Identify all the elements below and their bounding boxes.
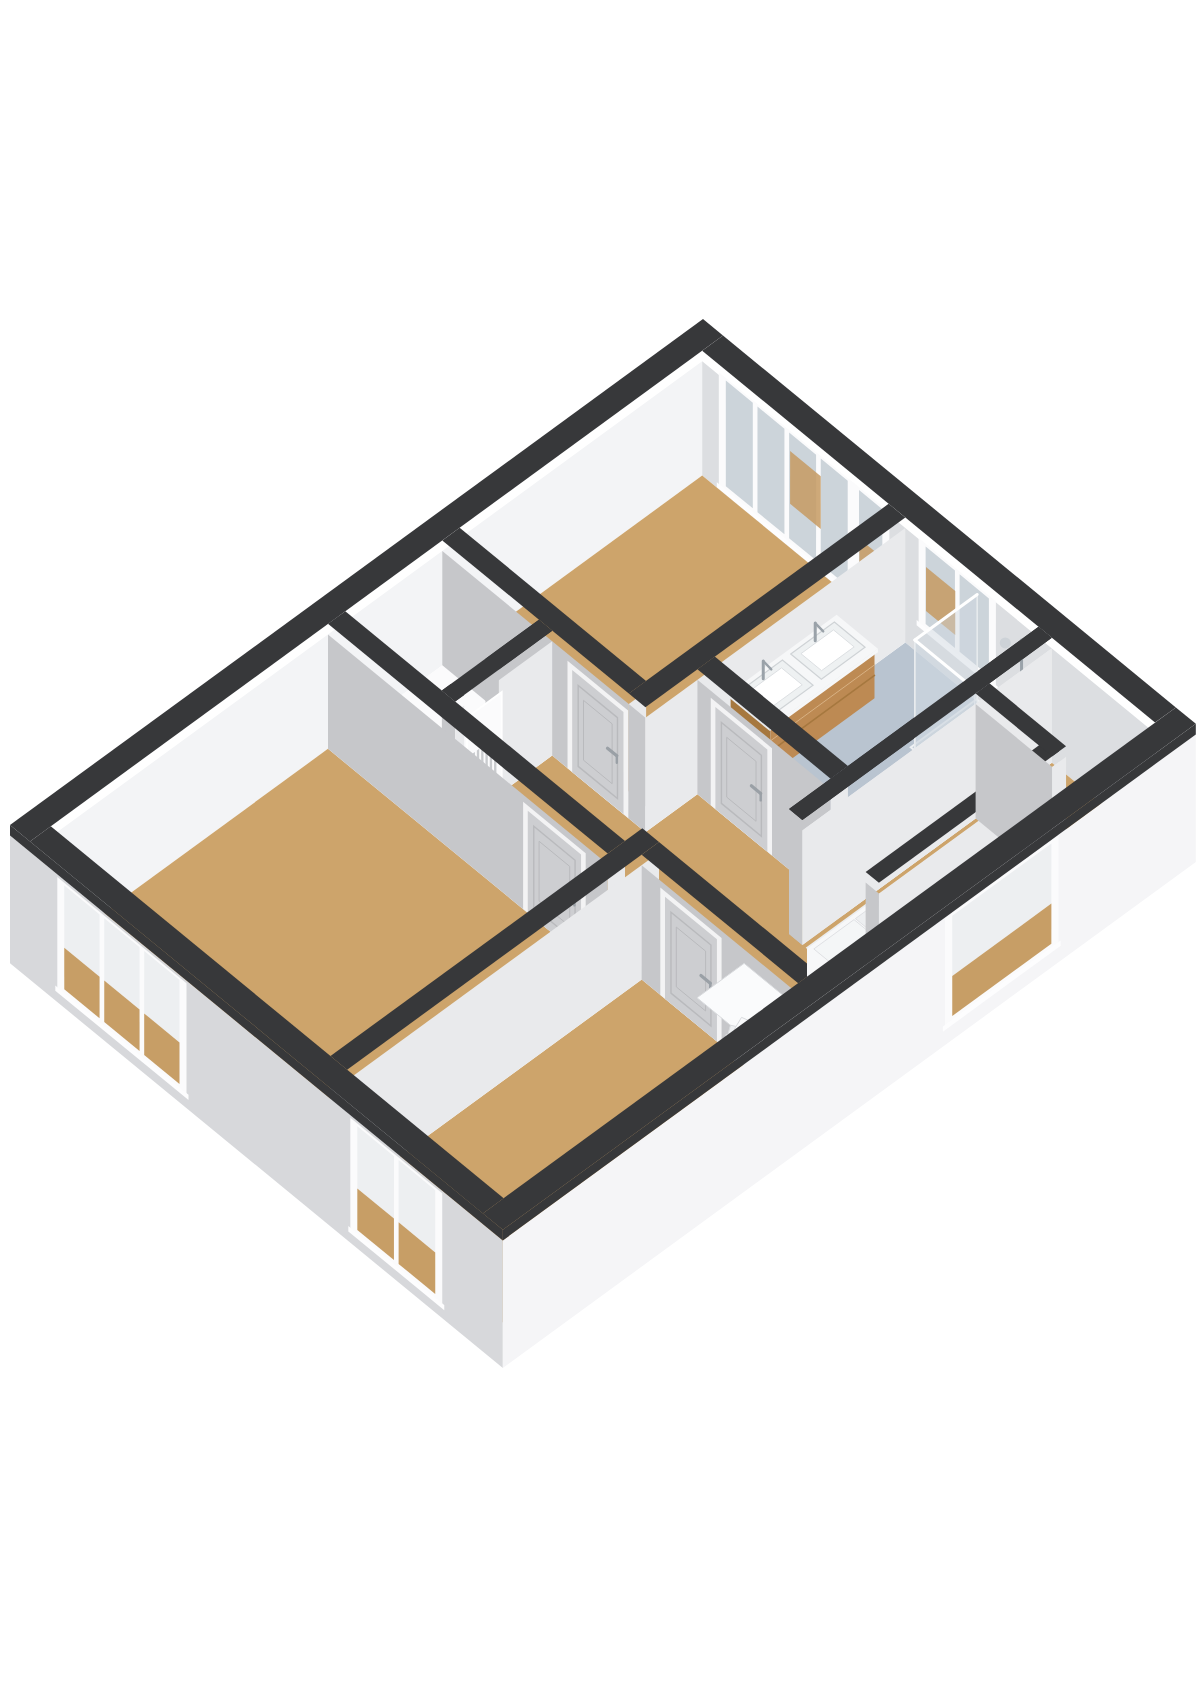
floorplan-page [0,0,1200,1697]
floorplan-3d-view [0,0,1200,1697]
shower-head-icon [1000,637,1011,648]
